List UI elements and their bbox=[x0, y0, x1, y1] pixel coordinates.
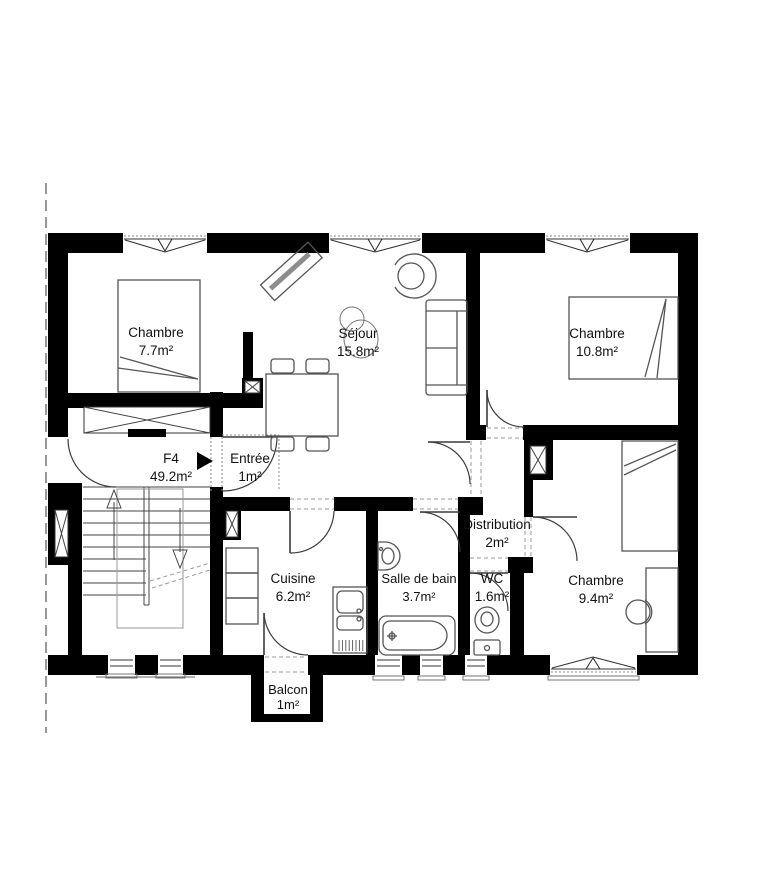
room-label-chambre-1: Chambre 7.7m² bbox=[128, 325, 184, 358]
door-distribution bbox=[428, 441, 481, 496]
floorplan-page: Chambre 7.7m² Séjour 15.8m² Chambre 10.8… bbox=[0, 0, 768, 871]
room-area: 1m² bbox=[238, 469, 262, 484]
toilet-icon bbox=[474, 607, 500, 655]
room-name: Entrée bbox=[230, 451, 270, 466]
room-area: 2m² bbox=[485, 535, 509, 550]
room-label-sejour: Séjour 15.8m² bbox=[337, 326, 380, 359]
room-name: Chambre bbox=[569, 326, 625, 341]
room-name: Salle de bain bbox=[381, 571, 456, 586]
dining-table-icon bbox=[266, 359, 338, 451]
window-icon-bottom-large bbox=[548, 657, 639, 680]
bed-icon-chambre-3 bbox=[622, 441, 678, 551]
floorplan-drawing: Chambre 7.7m² Séjour 15.8m² Chambre 10.8… bbox=[0, 0, 768, 871]
desk-icon-chambre-3 bbox=[626, 568, 678, 652]
room-name: Séjour bbox=[338, 326, 378, 341]
room-name: Cuisine bbox=[270, 571, 315, 586]
room-name: WC bbox=[481, 571, 504, 586]
room-area: 9.4m² bbox=[579, 591, 614, 606]
room-name: Balcon bbox=[268, 682, 308, 697]
window-icon-top-1 bbox=[124, 236, 206, 252]
elevator bbox=[84, 407, 210, 437]
door-balcon bbox=[264, 613, 308, 672]
staircase bbox=[83, 487, 210, 628]
unit-code: F4 bbox=[163, 451, 179, 466]
room-area: 1m² bbox=[277, 697, 300, 712]
door-cuisine bbox=[290, 499, 334, 553]
washbasin-icon bbox=[378, 542, 400, 570]
room-area: 6.2m² bbox=[276, 589, 311, 604]
stair-window-icon bbox=[55, 510, 68, 557]
window-icon-top-2 bbox=[330, 236, 421, 252]
window-icon-top-3 bbox=[546, 236, 629, 252]
door-salle-de-bain bbox=[413, 499, 460, 552]
building-entrance-door-arc bbox=[68, 439, 116, 487]
room-area: 7.7m² bbox=[139, 343, 174, 358]
room-label-chambre-3: Chambre 9.4m² bbox=[568, 573, 624, 606]
sofa-icon bbox=[426, 300, 467, 395]
room-label-entree: Entrée 1m² bbox=[230, 451, 270, 484]
armchair-icon bbox=[395, 254, 436, 298]
room-label-wc: WC 1.6m² bbox=[475, 571, 510, 604]
kitchen-counter-icon bbox=[226, 548, 258, 624]
elevator-door bbox=[128, 429, 166, 437]
room-name: Chambre bbox=[568, 573, 624, 588]
room-label-distribution: Distribution 2m² bbox=[463, 517, 531, 550]
room-area: 3.7m² bbox=[402, 589, 436, 604]
room-name: Chambre bbox=[128, 325, 184, 340]
room-area: 1.6m² bbox=[475, 589, 510, 604]
room-area: 15.8m² bbox=[337, 344, 380, 359]
kitchen-sink-icon bbox=[333, 587, 367, 653]
room-label-balcon: Balcon 1m² bbox=[268, 682, 308, 712]
room-name: Distribution bbox=[463, 517, 531, 532]
room-area: 10.8m² bbox=[576, 344, 619, 359]
room-label-chambre-2: Chambre 10.8m² bbox=[569, 326, 625, 359]
door-chambre-2 bbox=[487, 390, 524, 438]
bathtub-icon bbox=[379, 616, 455, 655]
unit-label: F4 49.2m² bbox=[150, 451, 213, 484]
door-chambre-3 bbox=[525, 517, 577, 561]
room-label-cuisine: Cuisine 6.2m² bbox=[270, 571, 315, 604]
room-label-salle-de-bain: Salle de bain 3.7m² bbox=[381, 571, 456, 604]
unit-area: 49.2m² bbox=[150, 469, 193, 484]
